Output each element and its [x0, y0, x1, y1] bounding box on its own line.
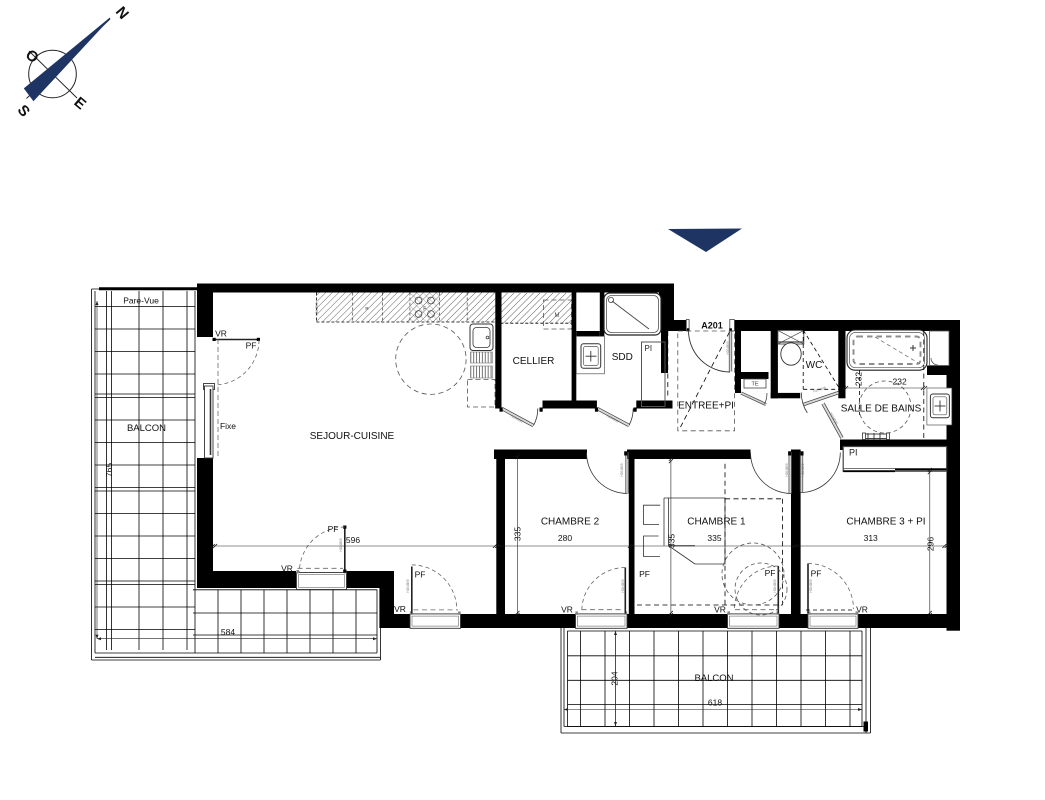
svg-text:335: 335 — [707, 533, 721, 543]
svg-text:A201: A201 — [701, 321, 723, 331]
svg-text:232: 232 — [893, 377, 907, 387]
svg-text:H204B95: H204B95 — [809, 579, 813, 593]
svg-text:584: 584 — [221, 627, 235, 637]
svg-text:296: 296 — [926, 537, 936, 551]
svg-text:H204B95: H204B95 — [620, 463, 624, 477]
svg-text:CHAMBRE 3 + PI: CHAMBRE 3 + PI — [846, 517, 925, 528]
svg-text:VR: VR — [281, 564, 293, 574]
svg-text:VR: VR — [215, 329, 227, 339]
svg-text:H204B95: H204B95 — [801, 463, 805, 477]
svg-text:BALCON: BALCON — [694, 673, 733, 684]
svg-text:SEJOUR-CUISINE: SEJOUR-CUISINE — [310, 431, 395, 442]
svg-text:H204B95: H204B95 — [621, 579, 625, 593]
svg-text:PF: PF — [246, 341, 257, 351]
svg-text:VR: VR — [856, 605, 868, 615]
svg-text:H204B95: H204B95 — [785, 463, 789, 477]
svg-text:CHAMBRE 2: CHAMBRE 2 — [541, 517, 600, 528]
svg-text:VR: VR — [714, 605, 726, 615]
svg-text:280: 280 — [558, 533, 572, 543]
svg-text:SALLE DE BAINS: SALLE DE BAINS — [841, 404, 922, 415]
svg-text:VR: VR — [561, 605, 573, 615]
svg-text:232: 232 — [854, 372, 864, 386]
svg-text:335: 335 — [667, 534, 677, 548]
svg-text:313: 313 — [864, 533, 878, 543]
svg-text:H204B95: H204B95 — [315, 302, 319, 316]
svg-text:H204B95: H204B95 — [773, 579, 777, 593]
svg-text:PF: PF — [328, 524, 339, 534]
svg-text:CHAMBRE 1: CHAMBRE 1 — [687, 517, 746, 528]
svg-text:PF: PF — [811, 569, 822, 579]
svg-text:ENTREE+PI: ENTREE+PI — [678, 401, 734, 412]
svg-text:Fixe: Fixe — [220, 421, 236, 431]
svg-text:PF: PF — [765, 568, 776, 578]
svg-text:PF: PF — [639, 569, 650, 579]
svg-text:H204B95: H204B95 — [726, 341, 730, 355]
svg-text:BALCON: BALCON — [127, 423, 166, 434]
svg-text:PI: PI — [645, 344, 653, 353]
svg-text:F: F — [423, 307, 426, 313]
svg-text:765: 765 — [104, 463, 114, 477]
svg-text:PF: PF — [415, 570, 426, 580]
svg-text:M: M — [555, 313, 560, 319]
svg-text:204: 204 — [610, 671, 620, 685]
svg-text:VR: VR — [394, 604, 406, 614]
svg-text:CELLIER: CELLIER — [513, 356, 555, 367]
svg-text:PI: PI — [849, 448, 858, 458]
svg-text:SDD: SDD — [612, 352, 633, 363]
svg-text:335: 335 — [513, 527, 523, 541]
svg-text:H204B95: H204B95 — [406, 579, 410, 593]
svg-text:596: 596 — [346, 535, 360, 545]
svg-text:618: 618 — [708, 698, 722, 708]
svg-text:WC: WC — [806, 360, 823, 371]
svg-text:H204B95: H204B95 — [339, 538, 343, 552]
svg-text:Pare-Vue: Pare-Vue — [123, 296, 159, 306]
svg-text:TE: TE — [751, 382, 758, 388]
